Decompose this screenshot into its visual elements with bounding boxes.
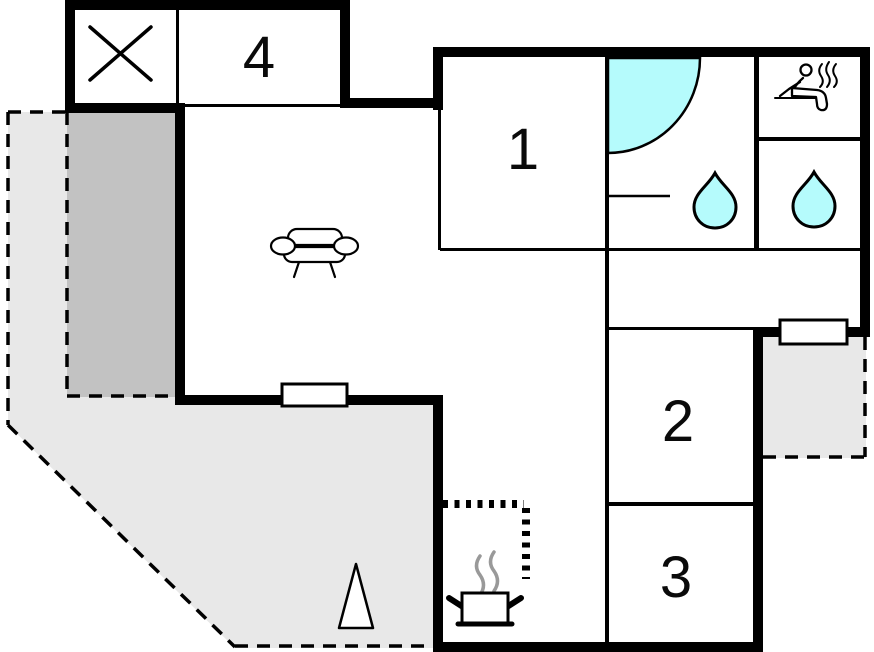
veranda-area: [67, 108, 180, 397]
water-drop-icon: [793, 172, 835, 227]
balcony-area: [763, 337, 866, 458]
room-2-label: 2: [662, 389, 694, 454]
room-1-label: 1: [507, 117, 539, 182]
window: [780, 320, 847, 344]
floor-plan: 1 2 3 4: [0, 0, 874, 652]
room-3-label: 3: [660, 545, 692, 610]
kitchen-dotted-line: [443, 504, 526, 579]
room-4-label: 4: [243, 25, 275, 90]
cooking-steam-icon: [477, 552, 498, 595]
sofa-icon: [271, 229, 358, 277]
cooking-pot-icon: [449, 593, 521, 624]
sauna-steam-icon: [819, 62, 837, 87]
window: [282, 384, 347, 406]
floor-plan-svg: 1 2 3 4: [0, 0, 874, 652]
shower-icon: [608, 58, 700, 153]
cross-marker-icon: [90, 27, 151, 80]
water-drop-icon: [694, 173, 736, 228]
